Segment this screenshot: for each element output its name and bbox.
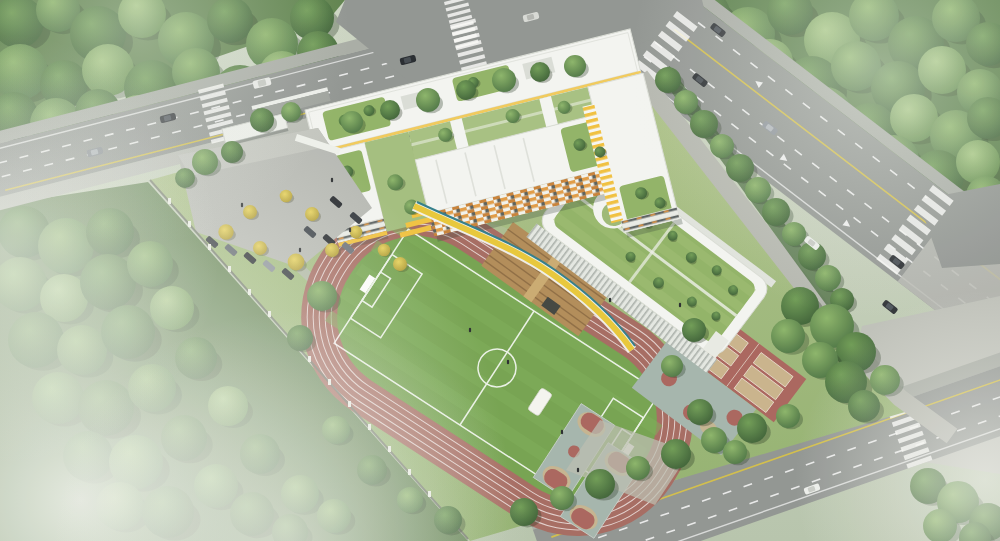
aerial-rendering	[0, 0, 1000, 541]
scene-rendering	[0, 0, 1000, 541]
mist-overlay	[0, 0, 1000, 541]
